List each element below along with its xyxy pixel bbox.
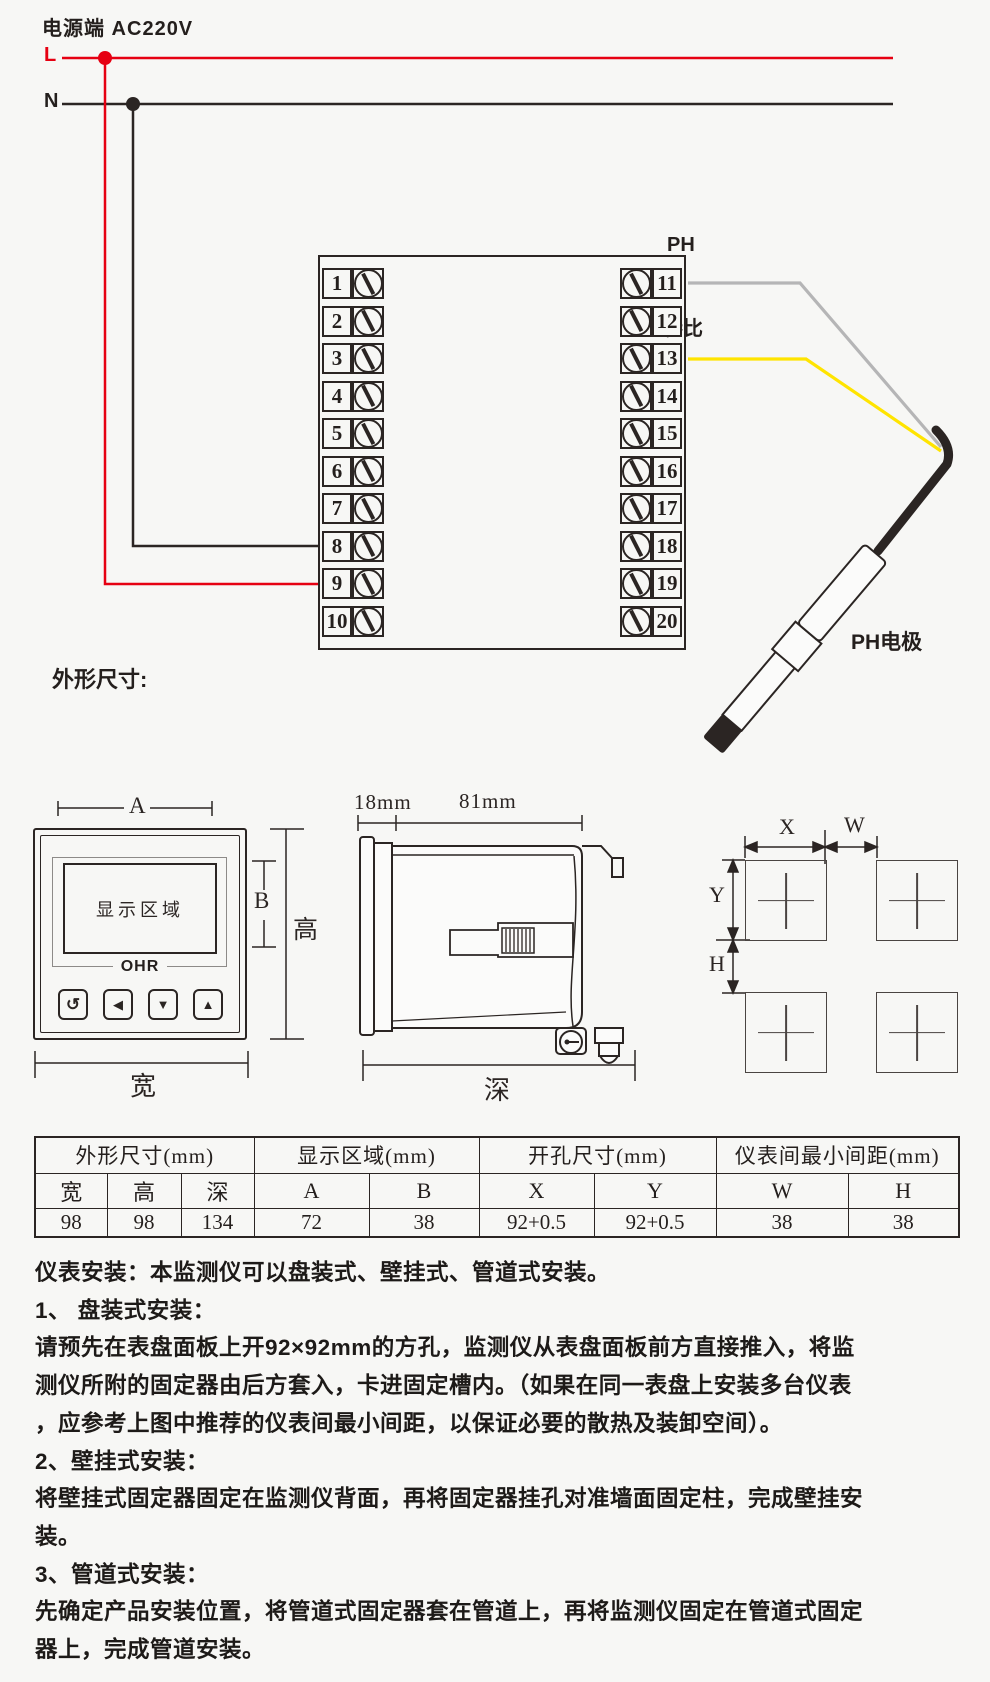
panel-cutout-square	[876, 860, 958, 941]
table-col-header: X	[479, 1173, 594, 1208]
terminal-column-right: 11121314151617181920	[618, 259, 682, 646]
down-button-icon: ▼	[148, 989, 178, 1020]
terminal-number: 15	[652, 418, 682, 449]
table-value-cell: 98	[35, 1208, 107, 1237]
table-group-header: 外形尺寸(mm)	[35, 1137, 254, 1173]
dim-b-label: B	[254, 888, 269, 914]
terminal-number: 10	[322, 606, 352, 637]
n-junction-dot	[126, 97, 140, 111]
dim-height-label: 高	[293, 910, 318, 946]
instruction-line: 测仪所附的固定器由后方套入，卡进固定槽内。（如果在同一表盘上安装多台仪表	[35, 1367, 965, 1405]
terminal-row: 17	[618, 493, 682, 524]
screw-icon	[352, 306, 384, 337]
screw-slot	[361, 348, 375, 370]
table-value-cell: 38	[848, 1208, 959, 1237]
side-view-drawing	[360, 837, 623, 1063]
dim-y-label: Y	[709, 882, 725, 908]
table-value-cell: 92+0.5	[594, 1208, 716, 1237]
screw-slot	[629, 610, 643, 632]
instruction-line: 器上，完成管道安装。	[35, 1631, 965, 1669]
side-view-dimensions	[358, 815, 635, 1081]
screw-icon	[620, 381, 652, 412]
power-source-title: 电源端 AC220V	[42, 12, 193, 41]
panel-cutout-square	[745, 992, 827, 1073]
terminal-row: 13	[618, 343, 682, 374]
terminal-number: 12	[652, 306, 682, 337]
screw-icon	[352, 343, 384, 374]
screw-icon	[352, 568, 384, 599]
table-col-header: A	[254, 1173, 369, 1208]
dim-81mm-label: 81mm	[459, 789, 517, 814]
l-wire-to-terminal9	[105, 58, 318, 584]
screw-icon	[620, 456, 652, 487]
instruction-line: 装。	[35, 1518, 965, 1556]
instruction-line: 仪表安装：本监测仪可以盘装式、壁挂式、管道式安装。	[35, 1254, 965, 1292]
terminal-row: 16	[618, 456, 682, 487]
terminal-row: 1	[322, 268, 386, 299]
dim-depth-label: 深	[484, 1070, 510, 1107]
screw-icon	[620, 493, 652, 524]
dim-h-label: H	[709, 951, 725, 977]
table-group-header: 仪表间最小间距(mm)	[716, 1137, 959, 1173]
table-value-cell: 98	[107, 1208, 181, 1237]
electrode-cable	[878, 430, 949, 551]
ph-wire	[688, 283, 941, 447]
terminal-row: 19	[618, 568, 682, 599]
terminal-row: 6	[322, 456, 386, 487]
screw-icon	[352, 606, 384, 637]
table-col-header: Y	[594, 1173, 716, 1208]
screw-slot	[629, 535, 643, 557]
screw-icon	[352, 268, 384, 299]
dim-a-label: A	[129, 793, 146, 819]
dim-x-label: X	[779, 814, 795, 840]
table-col-header: 深	[181, 1173, 254, 1208]
screw-slot	[361, 498, 375, 520]
screw-slot	[629, 460, 643, 482]
screw-icon	[620, 606, 652, 637]
screw-slot	[629, 385, 643, 407]
front-view-display: 显示区域	[63, 863, 217, 954]
terminal-number: 20	[652, 606, 682, 637]
table-value-cell: 92+0.5	[479, 1208, 594, 1237]
instruction-line: 将壁挂式固定器固定在监测仪背面，再将固定器挂孔对准墙面固定柱，完成壁挂安	[35, 1480, 965, 1518]
screw-slot	[361, 423, 375, 445]
terminal-row: 8	[322, 531, 386, 562]
terminal-row: 11	[618, 268, 682, 299]
terminal-row: 15	[618, 418, 682, 449]
screw-slot	[629, 498, 643, 520]
screw-slot	[361, 310, 375, 332]
table-value-cell: 38	[716, 1208, 848, 1237]
terminal-number: 7	[322, 493, 352, 524]
outline-section-title: 外形尺寸:	[52, 662, 147, 694]
screw-icon	[352, 493, 384, 524]
table-col-header: H	[848, 1173, 959, 1208]
dim-w-label: W	[844, 812, 865, 838]
terminal-row: 7	[322, 493, 386, 524]
table-col-header: B	[369, 1173, 479, 1208]
installation-instructions: 仪表安装：本监测仪可以盘装式、壁挂式、管道式安装。1、 盘装式安装：请预先在表盘…	[35, 1254, 965, 1669]
terminal-row: 2	[322, 306, 386, 337]
table-group-header: 显示区域(mm)	[254, 1137, 479, 1173]
terminal-number: 9	[322, 568, 352, 599]
table-col-header: 高	[107, 1173, 181, 1208]
panel-cutout-square	[876, 992, 958, 1073]
terminal-row: 5	[322, 418, 386, 449]
screw-icon	[620, 531, 652, 562]
screw-icon	[352, 531, 384, 562]
terminal-number: 8	[322, 531, 352, 562]
instruction-line: 请预先在表盘面板上开92×92mm的方孔，监测仪从表盘面板前方直接推入，将监	[35, 1329, 965, 1367]
left-button-icon: ◀	[103, 989, 133, 1020]
instruction-line: ，应参考上图中推荐的仪表间最小间距，以保证必要的散热及装卸空间）。	[35, 1405, 965, 1443]
terminal-block: 12345678910 11121314151617181920	[318, 255, 686, 650]
table-group-row: 外形尺寸(mm)显示区域(mm)开孔尺寸(mm)仪表间最小间距(mm)	[35, 1137, 959, 1173]
terminal-number: 5	[322, 418, 352, 449]
table-group-header: 开孔尺寸(mm)	[479, 1137, 716, 1173]
screw-slot	[629, 310, 643, 332]
line-n-label: N	[44, 90, 58, 113]
terminal-row: 3	[322, 343, 386, 374]
terminal-number: 17	[652, 493, 682, 524]
screw-slot	[361, 272, 375, 294]
terminal-number: 14	[652, 381, 682, 412]
terminal-row: 12	[618, 306, 682, 337]
n-wire-to-terminal8	[133, 104, 318, 546]
document-page: 电源端 AC220V L N PH 参比 PH电极 12345678910 11…	[0, 0, 990, 1682]
table-col-header: 宽	[35, 1173, 107, 1208]
screw-slot	[629, 348, 643, 370]
display-area-text: 显示区域	[96, 896, 184, 922]
screw-slot	[629, 573, 643, 595]
terminal-number: 3	[322, 343, 352, 374]
terminal-number: 16	[652, 456, 682, 487]
terminal-number: 6	[322, 456, 352, 487]
dim-18mm-label: 18mm	[354, 790, 412, 815]
l-junction-dot	[98, 51, 112, 65]
terminal-number: 4	[322, 381, 352, 412]
terminal-number: 1	[322, 268, 352, 299]
terminal-number: 19	[652, 568, 682, 599]
terminal-row: 20	[618, 606, 682, 637]
table-value-cell: 134	[181, 1208, 254, 1237]
screw-slot	[361, 460, 375, 482]
screw-icon	[620, 306, 652, 337]
terminal-number: 13	[652, 343, 682, 374]
table-col-row: 宽高深ABXYWH	[35, 1173, 959, 1208]
screw-icon	[620, 268, 652, 299]
panel-cutout-square	[745, 860, 827, 941]
instruction-line: 先确定产品安装位置，将管道式固定器套在管道上，再将监测仪固定在管道式固定	[35, 1593, 965, 1631]
dimension-spec-table: 外形尺寸(mm)显示区域(mm)开孔尺寸(mm)仪表间最小间距(mm)宽高深AB…	[34, 1136, 960, 1238]
screw-icon	[620, 568, 652, 599]
terminal-row: 9	[322, 568, 386, 599]
table-value-cell: 72	[254, 1208, 369, 1237]
terminal-row: 14	[618, 381, 682, 412]
screw-slot	[629, 423, 643, 445]
instruction-line: 1、 盘装式安装：	[35, 1292, 965, 1330]
table-value-cell: 38	[369, 1208, 479, 1237]
screw-icon	[352, 418, 384, 449]
table-col-header: W	[716, 1173, 848, 1208]
terminal-column-left: 12345678910	[322, 259, 386, 646]
loop-button-icon: ↺	[58, 989, 88, 1020]
instruction-line: 2、壁挂式安装：	[35, 1443, 965, 1481]
screw-slot	[629, 272, 643, 294]
screw-slot	[361, 385, 375, 407]
screw-icon	[620, 343, 652, 374]
terminal-row: 4	[322, 381, 386, 412]
screw-icon	[352, 456, 384, 487]
front-panel-buttons: ↺ ◀ ▼ ▲	[58, 989, 223, 1020]
terminal-row: 10	[322, 606, 386, 637]
ph-wire-label: PH	[667, 234, 695, 257]
dim-width-label: 宽	[130, 1066, 156, 1103]
ref-wire	[688, 359, 941, 451]
instruction-line: 3、管道式安装：	[35, 1556, 965, 1594]
brand-logo: OHR	[113, 958, 167, 976]
screw-icon	[620, 418, 652, 449]
screw-icon	[352, 381, 384, 412]
screw-slot	[361, 535, 375, 557]
line-l-label: L	[44, 44, 56, 67]
terminal-row: 18	[618, 531, 682, 562]
table-value-row: 9898134723892+0.592+0.53838	[35, 1208, 959, 1237]
terminal-number: 11	[652, 268, 682, 299]
terminal-number: 2	[322, 306, 352, 337]
up-button-icon: ▲	[193, 989, 223, 1020]
screw-slot	[361, 610, 375, 632]
ph-electrode-label: PH电极	[851, 626, 922, 656]
terminal-number: 18	[652, 531, 682, 562]
screw-slot	[361, 573, 375, 595]
